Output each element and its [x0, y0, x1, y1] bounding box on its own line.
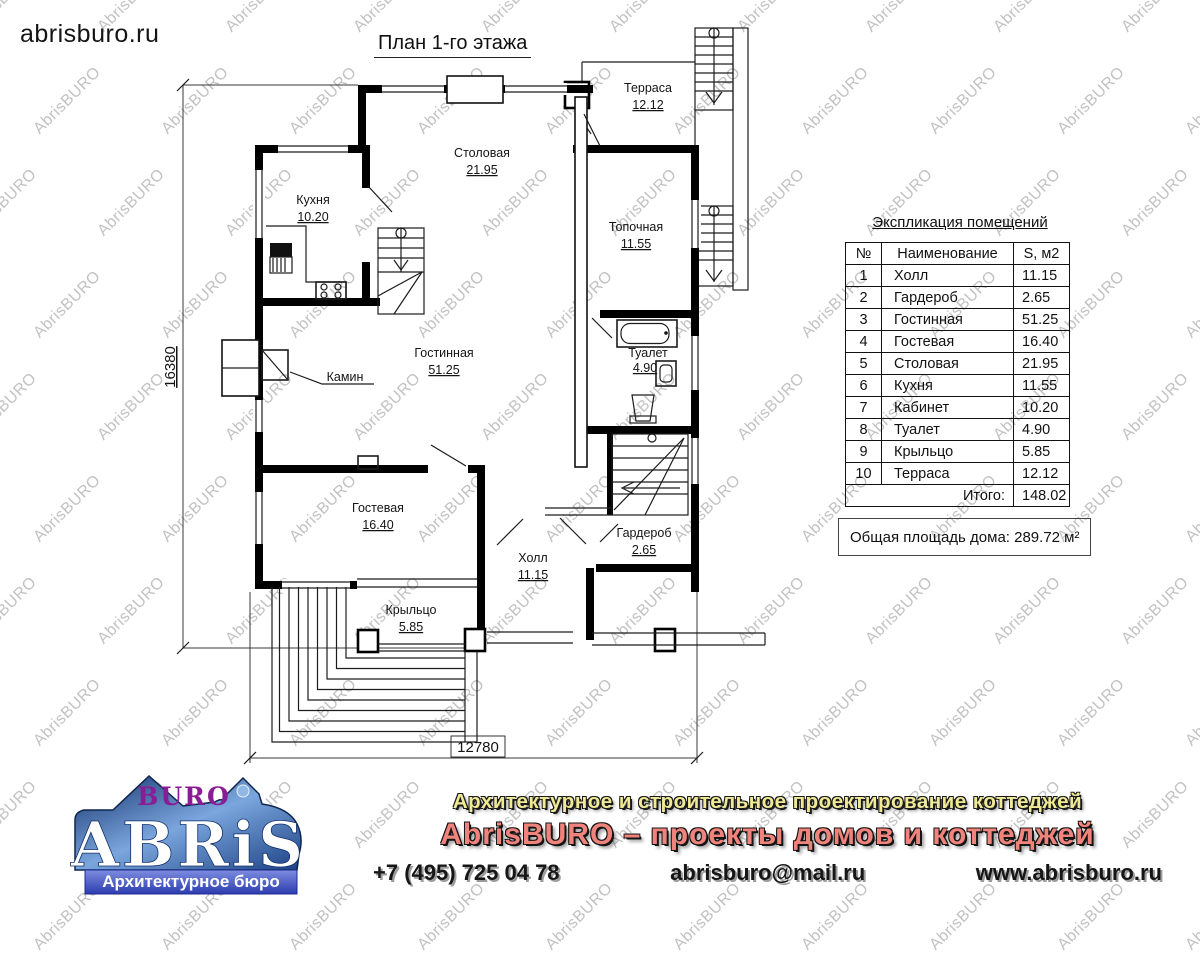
row-num: 7 — [846, 397, 882, 419]
row-area: 12.12 — [1014, 463, 1070, 485]
stairs-inner — [545, 434, 688, 515]
table-row: 8Туалет4.90 — [846, 419, 1070, 441]
fireplace — [222, 340, 374, 396]
room-label-boiler: Топочная — [609, 220, 663, 234]
row-name: Крыльцо — [882, 441, 1014, 463]
room-area-dining: 21.95 — [466, 163, 497, 177]
room-area-terrace: 12.12 — [632, 98, 663, 112]
dimension-height: 16380 — [162, 346, 179, 388]
col-header-area: S, м2 — [1014, 243, 1070, 265]
row-area: 11.55 — [1014, 375, 1070, 397]
row-name: Холл — [882, 265, 1014, 287]
row-area: 16.40 — [1014, 331, 1070, 353]
room-label-guest: Гостевая — [352, 501, 404, 515]
room-area-living: 51.25 — [428, 363, 459, 377]
footer-email: abrisburo@mail.ru — [670, 860, 865, 886]
row-num: 8 — [846, 419, 882, 441]
row-area: 10.20 — [1014, 397, 1070, 419]
logo-buro-text: BURO — [137, 782, 231, 811]
row-name: Кухня — [882, 375, 1014, 397]
table-row: 7Кабинет10.20 — [846, 397, 1070, 419]
abris-logo: BURO ABRiS Архитектурное бюро — [57, 772, 315, 898]
row-name: Гостинная — [882, 309, 1014, 331]
row-area: 11.15 — [1014, 265, 1070, 287]
room-label-fireplace: Камин — [327, 370, 364, 384]
table-row: 5Столовая21.95 — [846, 353, 1070, 375]
room-label-wardrobe: Гардероб — [617, 526, 672, 540]
col-header-num: № — [846, 243, 882, 265]
room-area-hall: 11.15 — [518, 568, 548, 582]
room-area-wardrobe: 2.65 — [632, 543, 656, 557]
row-name: Гардероб — [882, 287, 1014, 309]
room-label-terrace: Терраса — [624, 81, 672, 95]
row-num: 6 — [846, 375, 882, 397]
col-header-name: Наименование — [882, 243, 1014, 265]
row-area: 21.95 — [1014, 353, 1070, 375]
table-row: 4Гостевая16.40 — [846, 331, 1070, 353]
row-num: 9 — [846, 441, 882, 463]
total-area-text: Общая площадь дома: 289.72 м² — [850, 529, 1079, 546]
row-area: 4.90 — [1014, 419, 1070, 441]
explication-table: Экспликация помещений № Наименование S, … — [845, 214, 1075, 507]
total-area-box: Общая площадь дома: 289.72 м² — [838, 518, 1091, 556]
room-area-toilet: 4.90 — [633, 361, 657, 375]
footer-phone: +7 (495) 725 04 78 — [373, 860, 560, 886]
page-title: План 1-го этажа — [374, 32, 531, 58]
row-num: 3 — [846, 309, 882, 331]
footer-website: www.abrisburo.ru — [976, 860, 1162, 886]
logo-ribbon-text: Архитектурное бюро — [102, 872, 280, 891]
row-num: 4 — [846, 331, 882, 353]
kitchen-fixtures — [266, 226, 346, 299]
table-row: 10Терраса12.12 — [846, 463, 1070, 485]
row-name: Кабинет — [882, 397, 1014, 419]
footer-slogan: AbrisBURO – проекты домов и коттеджей — [345, 818, 1190, 852]
footer-contacts: +7 (495) 725 04 78 abrisburo@mail.ru www… — [345, 860, 1190, 886]
explication-title: Экспликация помещений — [845, 214, 1075, 231]
table-row: 6Кухня11.55 — [846, 375, 1070, 397]
logo-dot-icon — [237, 785, 249, 797]
row-name: Туалет — [882, 419, 1014, 441]
dimension-lines: 16380 12780 — [162, 79, 703, 764]
room-area-boiler: 11.55 — [621, 237, 651, 251]
row-name: Гостевая — [882, 331, 1014, 353]
room-label-dining: Столовая — [454, 146, 510, 160]
footer: BURO ABRiS Архитектурное бюро Архитектур… — [0, 768, 1200, 900]
table-row: 2Гардероб2.65 — [846, 287, 1070, 309]
row-num: 2 — [846, 287, 882, 309]
row-name: Столовая — [882, 353, 1014, 375]
stairs-central — [378, 228, 424, 314]
room-label-hall: Холл — [518, 551, 547, 565]
room-label-toilet: Туалет — [628, 346, 668, 360]
porch-and-steps — [272, 579, 765, 742]
row-area: 2.65 — [1014, 287, 1070, 309]
footer-text: Архитектурное и строительное проектирова… — [345, 768, 1190, 886]
table-row: 3Гостинная51.25 — [846, 309, 1070, 331]
table-header-row: № Наименование S, м2 — [846, 243, 1070, 265]
table-row: 9Крыльцо5.85 — [846, 441, 1070, 463]
room-area-guest: 16.40 — [362, 518, 393, 532]
site-url: abrisburo.ru — [20, 20, 159, 49]
room-label-porch: Крыльцо — [386, 603, 437, 617]
room-label-kitchen: Кухня — [296, 193, 329, 207]
row-num: 5 — [846, 353, 882, 375]
row-area: 51.25 — [1014, 309, 1070, 331]
outdoor-stairs-lower — [695, 110, 733, 286]
row-area: 5.85 — [1014, 441, 1070, 463]
table-row: 1Холл11.15 — [846, 265, 1070, 287]
room-area-porch: 5.85 — [399, 620, 423, 634]
row-num: 10 — [846, 463, 882, 485]
table-total-row: Итого: 148.02 — [846, 485, 1070, 507]
row-num: 1 — [846, 265, 882, 287]
total-value: 148.02 — [1014, 485, 1070, 507]
room-area-kitchen: 10.20 — [297, 210, 328, 224]
total-label: Итого: — [846, 485, 1014, 507]
footer-tagline: Архитектурное и строительное проектирова… — [345, 790, 1190, 814]
row-name: Терраса — [882, 463, 1014, 485]
room-label-living: Гостинная — [414, 346, 473, 360]
